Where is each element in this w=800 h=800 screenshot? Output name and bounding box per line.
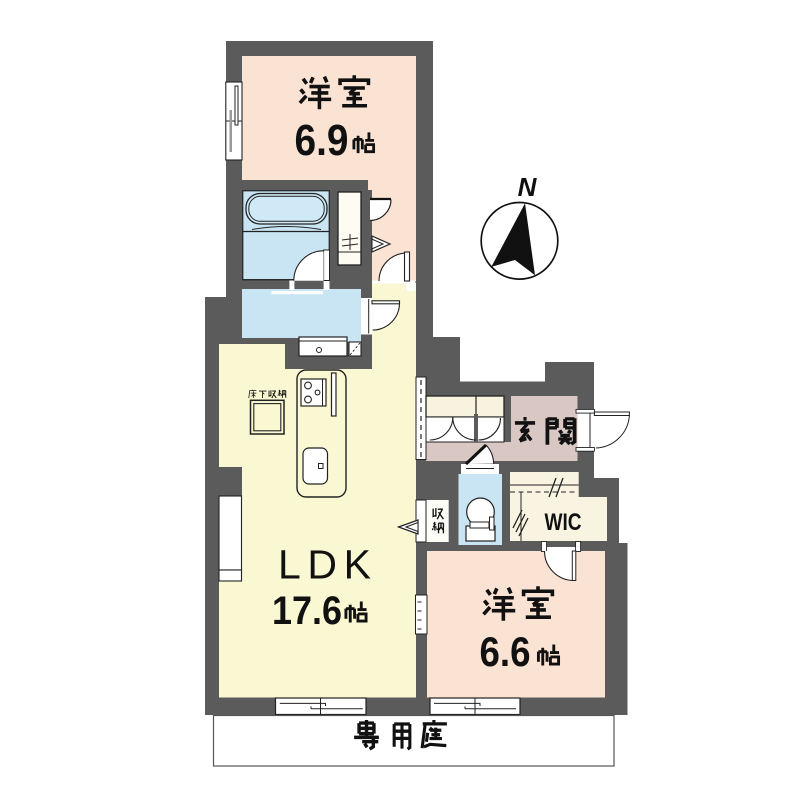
svg-text:N: N	[518, 172, 538, 202]
svg-text:6.9: 6.9	[295, 116, 349, 165]
svg-text:17.6: 17.6	[272, 589, 342, 633]
svg-text:LDK: LDK	[278, 542, 371, 588]
svg-text:WIC: WIC	[545, 509, 582, 536]
svg-text:6.6: 6.6	[480, 628, 531, 675]
